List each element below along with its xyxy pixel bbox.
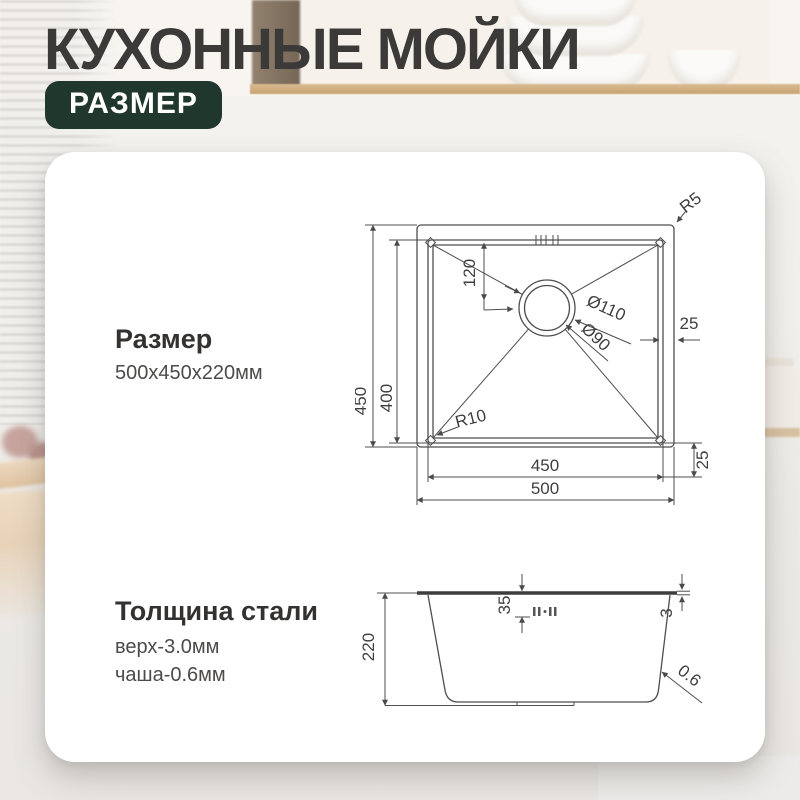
- stamp-marks: [533, 607, 557, 616]
- dim-outer-depth: 450: [355, 387, 370, 415]
- size-value: 500x450x220мм: [115, 362, 263, 385]
- size-badge: РАЗМЕР: [45, 81, 222, 129]
- page-title: КУХОННЫЕ МОЙКИ: [44, 16, 579, 83]
- dim-rim-bottom: 25: [693, 451, 712, 470]
- dim-outer-width: 500: [531, 479, 559, 498]
- wood-shelf-decor: [250, 84, 800, 94]
- bowl-profile: [417, 593, 677, 706]
- dim-wall-thickness: 0.6: [674, 661, 704, 691]
- thickness-section-heading: Толщина стали: [115, 596, 318, 627]
- size-section-heading: Размер: [115, 324, 212, 355]
- dim-ledge: 35: [495, 596, 514, 615]
- dim-inner-width: 450: [531, 456, 559, 475]
- sink-top-view-drawing: 450 400 120 25 450: [355, 188, 715, 513]
- dim-rim-side: 25: [680, 314, 699, 333]
- dim-height: 220: [359, 633, 378, 661]
- dim-drain-offset: 120: [460, 259, 479, 287]
- thickness-bowl-value: чаша-0.6мм: [115, 664, 226, 687]
- sink-size-infographic: КУХОННЫЕ МОЙКИ РАЗМЕР Размер 500x450x220…: [0, 0, 800, 800]
- dim-inner-depth: 400: [377, 384, 396, 412]
- rim-tick-marks: [532, 235, 565, 245]
- label-outer-radius: R5: [676, 188, 705, 216]
- spec-card: Размер 500x450x220мм Толщина стали верх-…: [45, 152, 765, 762]
- floor-panel-decor: [598, 756, 800, 800]
- sink-side-view-drawing: 220 35 3 0.6: [355, 562, 715, 732]
- dim-top-thickness: 3: [657, 608, 676, 617]
- thickness-top-value: верх-3.0мм: [115, 636, 219, 659]
